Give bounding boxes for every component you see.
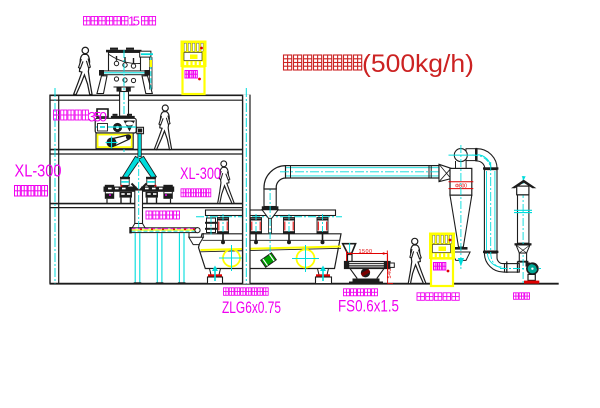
svg-text:XL-300: XL-300 <box>180 165 221 183</box>
svg-text:1500: 1500 <box>359 249 373 255</box>
svg-text:XL-300: XL-300 <box>15 161 62 181</box>
svg-text:540: 540 <box>387 269 393 279</box>
svg-text:1.5: 1.5 <box>128 14 140 29</box>
svg-text:ZLG6x0.75: ZLG6x0.75 <box>222 299 281 317</box>
svg-text:FS0.6x1.5: FS0.6x1.5 <box>338 298 399 316</box>
svg-text:(500kg/h): (500kg/h) <box>362 50 474 78</box>
svg-text:350: 350 <box>88 109 107 125</box>
